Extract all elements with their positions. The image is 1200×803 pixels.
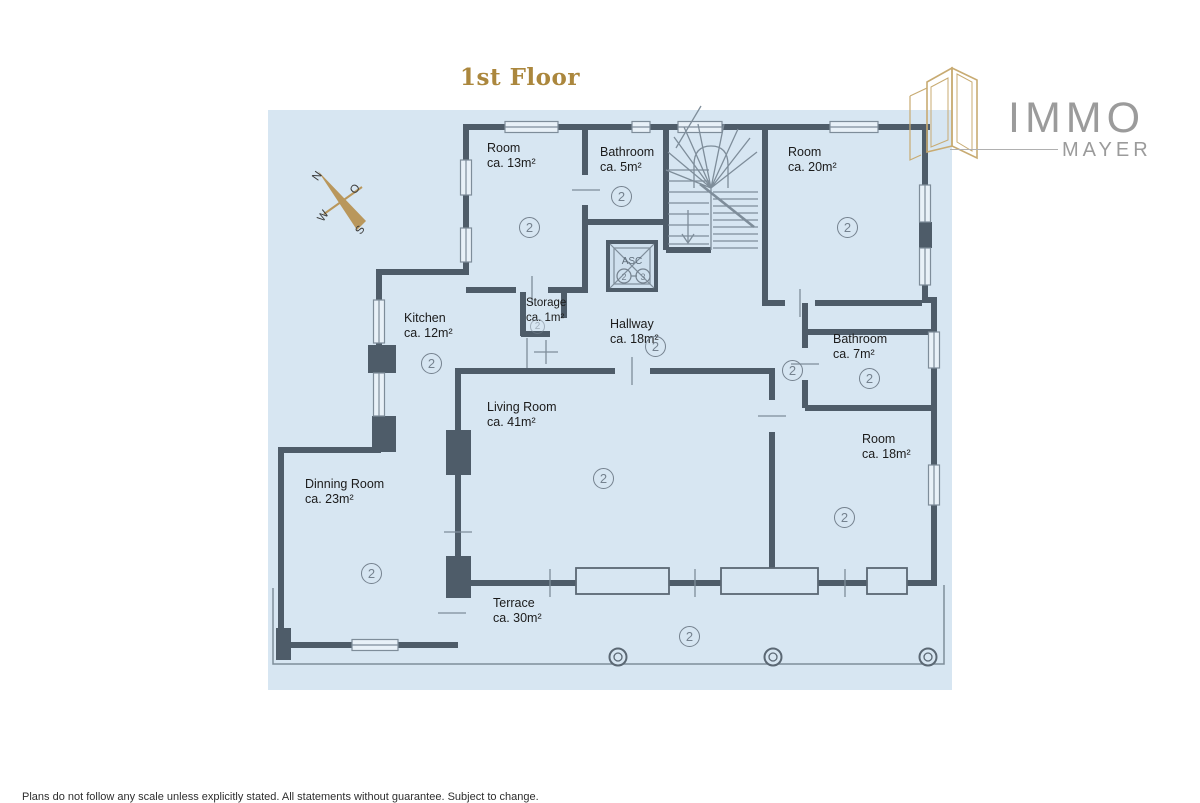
room-label-living-room: Living Roomca. 41m² [487, 400, 556, 429]
floor-level-badge: 2 [782, 360, 803, 381]
room-label-terrace: Terraceca. 30m² [493, 596, 542, 625]
room-label-room13: Roomca. 13m² [487, 141, 536, 170]
elevator-shaft: ASC 2 3 [608, 242, 656, 290]
logo-rule [950, 149, 1058, 150]
floor-level-badge: 2 [611, 186, 632, 207]
disclaimer-text: Plans do not follow any scale unless exp… [22, 791, 539, 803]
floor-level-badge: 2 [361, 563, 382, 584]
plan-paper [268, 110, 952, 690]
floor-level-badge: 2 [837, 217, 858, 238]
room-label-bathroom7: Bathroomca. 7m² [833, 332, 887, 361]
elevator-floor-b: 3 [640, 272, 645, 282]
floor-level-badge: 2 [834, 507, 855, 528]
floor-level-badge: 2 [645, 336, 666, 357]
room-label-bathroom5: Bathroomca. 5m² [600, 145, 654, 174]
elevator-floor-a: 2 [621, 272, 626, 282]
room-label-kitchen: Kitchenca. 12m² [404, 311, 453, 340]
elevator-label: ASC [622, 256, 643, 267]
page-title: 1st Floor [460, 64, 580, 91]
room-label-dinning-room: Dinning Roomca. 23m² [305, 477, 384, 506]
floor-level-badge: 2 [679, 626, 700, 647]
floor-level-badge: 2 [421, 353, 442, 374]
floor-level-badge: 2 [859, 368, 880, 389]
floor-level-badge: 2 [530, 319, 545, 334]
logo-subname: MAYER [1062, 139, 1152, 162]
room-label-room18: Roomca. 18m² [862, 432, 911, 461]
floor-level-badge: 2 [519, 217, 540, 238]
logo-name: IMMO [1008, 94, 1145, 143]
room-label-room20: Roomca. 20m² [788, 145, 837, 174]
floor-level-badge: 2 [593, 468, 614, 489]
